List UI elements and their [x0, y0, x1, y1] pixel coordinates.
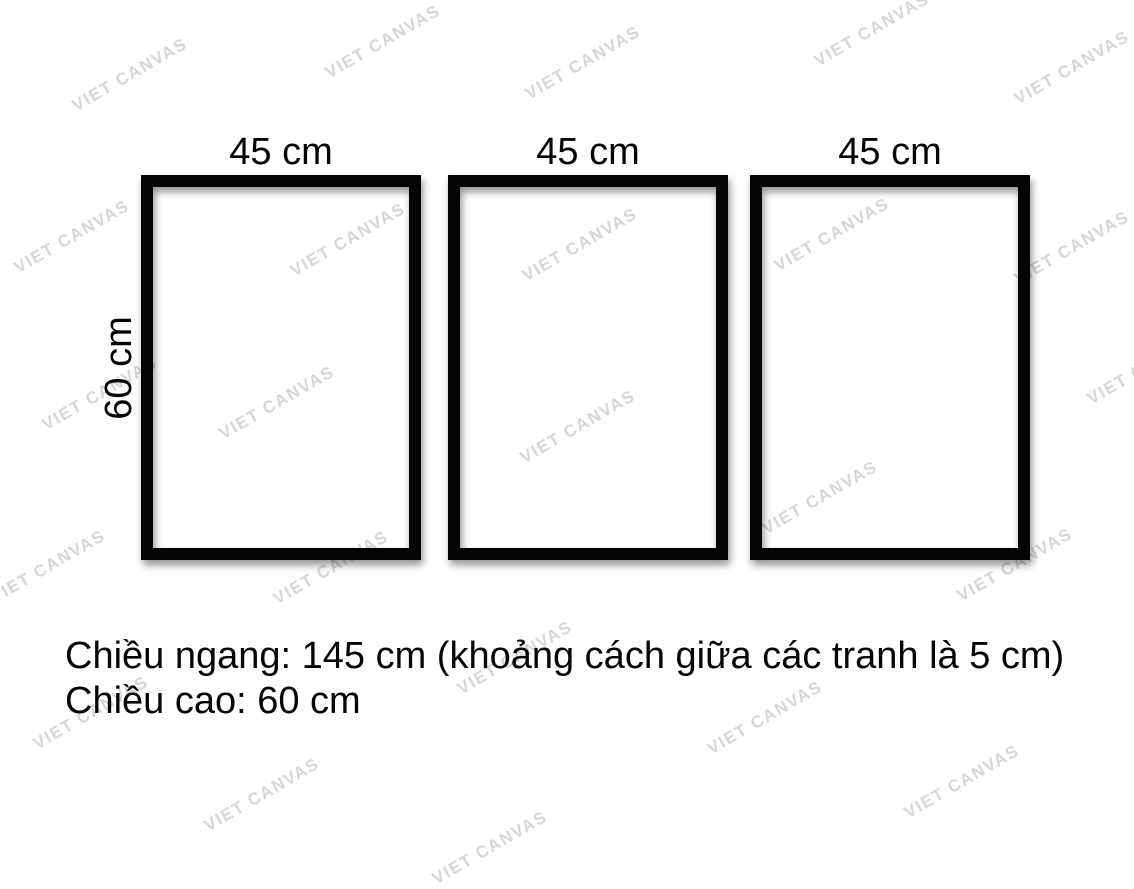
picture-frame-2 — [448, 175, 728, 560]
watermark-text: VIET CANVAS — [11, 196, 133, 278]
watermark-text: VIET CANVAS — [201, 754, 323, 836]
frame-2-width-label: 45 cm — [448, 132, 728, 172]
watermark-text: VIET CANVAS — [522, 22, 644, 104]
watermark-text: VIET CANVAS — [1084, 327, 1134, 409]
picture-frame-3 — [750, 175, 1030, 560]
frame-1-width-label: 45 cm — [141, 132, 421, 172]
watermark-text: VIET CANVAS — [0, 526, 109, 608]
picture-frame-1 — [141, 175, 421, 560]
frame-height-label: 60 cm — [99, 268, 139, 468]
watermark-text: VIET CANVAS — [69, 34, 191, 116]
frame-3-width-label: 45 cm — [750, 132, 1030, 172]
caption-line-horizontal: Chiều ngang: 145 cm (khoảng cách giữa cá… — [65, 634, 1064, 679]
diagram-canvas: VIET CANVASVIET CANVASVIET CANVASVIET CA… — [0, 0, 1134, 850]
watermark-text: VIET CANVAS — [429, 807, 551, 889]
watermark-text: VIET CANVAS — [811, 0, 933, 71]
caption-line-vertical: Chiều cao: 60 cm — [65, 679, 1064, 724]
watermark-text: VIET CANVAS — [901, 741, 1023, 823]
watermark-text: VIET CANVAS — [1011, 27, 1133, 109]
watermark-text: VIET CANVAS — [322, 1, 444, 83]
dimensions-caption: Chiều ngang: 145 cm (khoảng cách giữa cá… — [65, 634, 1064, 724]
